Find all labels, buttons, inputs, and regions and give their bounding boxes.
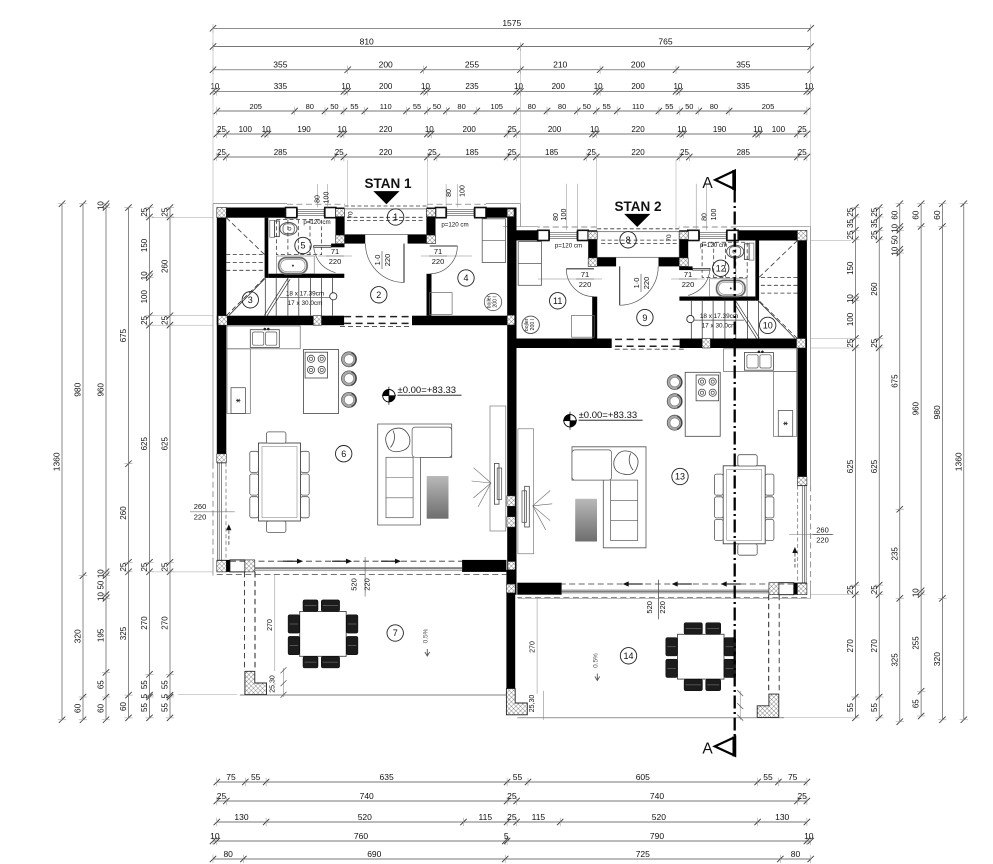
svg-text:270: 270 (161, 616, 170, 630)
svg-text:285: 285 (737, 148, 751, 157)
svg-text:1360: 1360 (52, 452, 62, 471)
svg-text:60: 60 (912, 210, 921, 219)
svg-text:270: 270 (140, 616, 149, 630)
svg-text:255: 255 (912, 636, 921, 650)
svg-text:335: 335 (274, 82, 288, 91)
svg-text:150: 150 (846, 261, 855, 275)
svg-text:105: 105 (490, 102, 503, 111)
svg-text:10: 10 (97, 569, 106, 578)
svg-text:5: 5 (161, 693, 170, 698)
svg-text:625: 625 (846, 459, 855, 473)
svg-text:60: 60 (97, 703, 106, 712)
svg-text:200: 200 (463, 125, 477, 134)
svg-text:A: A (702, 175, 713, 192)
svg-text:220: 220 (432, 257, 445, 266)
svg-text:25: 25 (161, 207, 170, 216)
svg-text:10: 10 (210, 82, 219, 91)
svg-text:100: 100 (772, 125, 786, 134)
svg-text:10: 10 (846, 294, 855, 303)
svg-text:1: 1 (393, 212, 398, 222)
svg-text:10: 10 (262, 125, 271, 134)
svg-text:10: 10 (421, 82, 430, 91)
svg-text:25,30: 25,30 (269, 675, 276, 693)
svg-text:0.5%: 0.5% (593, 653, 600, 668)
svg-text:200: 200 (379, 60, 393, 70)
svg-text:25,30: 25,30 (529, 695, 536, 713)
svg-text:980: 980 (73, 382, 83, 396)
svg-text:±0.00=+83.33: ±0.00=+83.33 (398, 385, 457, 396)
svg-text:220: 220 (194, 513, 207, 522)
svg-text:p=120 cm: p=120 cm (441, 222, 468, 229)
svg-text:115: 115 (532, 812, 546, 822)
svg-text:980: 980 (932, 405, 942, 419)
svg-text:235: 235 (890, 547, 899, 561)
svg-text:25: 25 (507, 791, 517, 801)
svg-text:80: 80 (710, 102, 718, 111)
svg-text:325: 325 (119, 626, 128, 640)
svg-text:35: 35 (870, 219, 879, 228)
svg-text:25: 25 (217, 148, 226, 157)
svg-text:70: 70 (666, 234, 673, 242)
svg-text:80: 80 (315, 195, 322, 203)
svg-text:210: 210 (553, 60, 567, 70)
svg-text:55: 55 (140, 680, 149, 689)
svg-text:100: 100 (239, 125, 253, 134)
svg-text:220: 220 (379, 148, 393, 157)
svg-text:25: 25 (161, 315, 170, 324)
svg-text:10: 10 (425, 125, 434, 134)
svg-text:520: 520 (652, 812, 666, 822)
svg-text:220: 220 (329, 257, 342, 266)
svg-text:80: 80 (558, 102, 566, 111)
svg-text:760: 760 (354, 831, 368, 841)
svg-text:18 x 17.39cm: 18 x 17.39cm (286, 290, 324, 297)
svg-text:260: 260 (119, 506, 128, 520)
svg-text:100: 100 (711, 209, 718, 221)
svg-text:255: 255 (465, 60, 479, 70)
svg-text:220: 220 (579, 280, 592, 289)
svg-text:325: 325 (890, 653, 899, 667)
svg-text:625: 625 (870, 459, 879, 473)
svg-text:25: 25 (680, 148, 689, 157)
svg-text:10: 10 (912, 588, 921, 597)
svg-text:50: 50 (97, 580, 106, 589)
svg-text:55: 55 (763, 772, 773, 782)
svg-text:25: 25 (798, 125, 807, 134)
svg-text:260: 260 (870, 282, 879, 296)
svg-text:10: 10 (338, 125, 347, 134)
svg-text:765: 765 (658, 36, 672, 46)
svg-text:80: 80 (306, 102, 314, 111)
svg-text:80: 80 (791, 849, 801, 859)
svg-text:55: 55 (140, 703, 149, 712)
svg-text:100: 100 (324, 192, 331, 204)
svg-text:50: 50 (890, 235, 899, 244)
svg-text:220: 220 (682, 280, 695, 289)
svg-text:4: 4 (463, 273, 468, 283)
svg-text:55: 55 (513, 772, 523, 782)
svg-text:110: 110 (380, 102, 392, 111)
svg-text:5: 5 (140, 693, 149, 698)
svg-text:80: 80 (528, 102, 536, 111)
svg-text:110: 110 (632, 102, 644, 111)
svg-text:60: 60 (932, 210, 942, 220)
svg-text:60: 60 (119, 702, 128, 711)
svg-text:10: 10 (590, 125, 599, 134)
svg-text:10: 10 (763, 321, 773, 331)
svg-text:25: 25 (846, 230, 855, 239)
svg-text:130: 130 (775, 812, 789, 822)
svg-text:320: 320 (73, 629, 83, 643)
svg-text:p=120 cm: p=120 cm (303, 219, 330, 226)
svg-text:50: 50 (433, 102, 441, 111)
svg-text:960: 960 (97, 382, 106, 396)
svg-text:71: 71 (434, 247, 442, 256)
svg-text:25: 25 (798, 148, 807, 157)
svg-text:270: 270 (529, 641, 536, 653)
svg-text:55: 55 (870, 703, 879, 712)
svg-text:285: 285 (274, 148, 288, 157)
svg-text:55: 55 (350, 102, 358, 111)
svg-text:200: 200 (552, 82, 566, 91)
svg-text:25: 25 (140, 562, 149, 571)
svg-text:55: 55 (251, 772, 261, 782)
svg-text:675: 675 (119, 328, 128, 342)
svg-text:±0.00=+83.33: ±0.00=+83.33 (579, 410, 638, 421)
svg-text:80: 80 (553, 213, 560, 221)
svg-text:1·0: 1·0 (632, 278, 641, 289)
svg-text:260: 260 (194, 502, 207, 511)
svg-text:80: 80 (457, 102, 465, 111)
svg-text:100: 100 (846, 312, 855, 326)
svg-text:220: 220 (363, 578, 372, 591)
svg-text:100: 100 (460, 185, 467, 197)
svg-text:25: 25 (161, 562, 170, 571)
svg-text:25: 25 (335, 148, 344, 157)
svg-text:810: 810 (360, 36, 374, 46)
svg-text:25: 25 (797, 791, 807, 801)
svg-text:10: 10 (890, 223, 899, 232)
svg-text:790: 790 (650, 831, 664, 841)
svg-text:520: 520 (645, 601, 654, 614)
svg-text:75: 75 (226, 772, 236, 782)
svg-text:35: 35 (846, 219, 855, 228)
svg-text:STAN 2: STAN 2 (614, 199, 661, 214)
svg-text:690: 690 (367, 849, 381, 859)
svg-text:150: 150 (140, 238, 149, 252)
svg-text:115: 115 (479, 812, 493, 822)
svg-text:0.5%: 0.5% (423, 628, 430, 643)
svg-text:205: 205 (249, 102, 262, 111)
svg-text:10: 10 (140, 271, 149, 280)
svg-text:50: 50 (685, 102, 693, 111)
svg-text:270: 270 (846, 639, 855, 653)
svg-text:2: 2 (376, 290, 381, 300)
svg-text:25: 25 (846, 585, 855, 594)
svg-text:10: 10 (97, 592, 106, 601)
svg-text:220: 220 (383, 254, 392, 267)
svg-text:220: 220 (379, 125, 393, 134)
svg-text:71: 71 (581, 270, 589, 279)
svg-text:STAN 1: STAN 1 (364, 176, 411, 191)
svg-text:355: 355 (273, 60, 287, 70)
svg-text:60: 60 (890, 210, 899, 219)
svg-text:9: 9 (642, 313, 647, 323)
svg-text:65: 65 (97, 680, 106, 689)
svg-text:10: 10 (677, 125, 686, 134)
svg-text:100: 100 (140, 289, 149, 303)
svg-text:260: 260 (816, 526, 829, 535)
svg-text:11: 11 (553, 296, 562, 306)
svg-text:25: 25 (870, 207, 879, 216)
svg-text:220: 220 (658, 601, 667, 614)
svg-text:25: 25 (428, 148, 437, 157)
svg-text:50: 50 (330, 102, 338, 111)
svg-text:200: 200 (379, 82, 393, 91)
svg-text:p=120 cm: p=120 cm (700, 242, 727, 249)
svg-text:5: 5 (504, 831, 509, 841)
svg-text:25: 25 (119, 562, 128, 571)
svg-text:335: 335 (737, 82, 751, 91)
svg-text:80: 80 (702, 213, 709, 221)
svg-text:71: 71 (331, 247, 339, 256)
svg-text:1575: 1575 (502, 18, 521, 28)
svg-text:25: 25 (140, 315, 149, 324)
svg-text:25: 25 (217, 125, 226, 134)
svg-text:520: 520 (358, 812, 372, 822)
svg-text:10: 10 (890, 246, 899, 255)
svg-text:270: 270 (267, 619, 274, 631)
svg-text:10: 10 (594, 82, 603, 91)
svg-text:1·0: 1·0 (373, 255, 382, 266)
svg-text:12: 12 (716, 264, 726, 274)
svg-text:10: 10 (804, 82, 813, 91)
svg-text:25: 25 (846, 338, 855, 347)
svg-text:65: 65 (912, 699, 921, 708)
svg-text:80: 80 (446, 189, 453, 197)
svg-text:270: 270 (870, 639, 879, 653)
svg-text:675: 675 (890, 374, 899, 388)
svg-text:71: 71 (684, 270, 692, 279)
svg-text:235: 235 (465, 82, 479, 91)
svg-text:200 l: 200 l (530, 319, 536, 330)
svg-text:355: 355 (736, 60, 750, 70)
svg-text:10: 10 (753, 125, 762, 134)
svg-text:70: 70 (348, 211, 355, 219)
svg-text:25: 25 (140, 207, 149, 216)
svg-text:100: 100 (561, 209, 568, 221)
svg-text:520: 520 (350, 578, 359, 591)
svg-text:55: 55 (413, 102, 421, 111)
svg-text:10: 10 (804, 831, 814, 841)
svg-text:190: 190 (713, 125, 727, 134)
svg-text:55: 55 (846, 703, 855, 712)
svg-text:55: 55 (161, 703, 170, 712)
svg-text:50: 50 (583, 102, 591, 111)
svg-text:6: 6 (341, 449, 346, 459)
svg-text:25: 25 (846, 207, 855, 216)
svg-text:1360: 1360 (953, 452, 963, 471)
svg-text:205: 205 (762, 102, 775, 111)
svg-text:185: 185 (465, 148, 479, 157)
svg-text:220: 220 (642, 277, 651, 290)
svg-text:25: 25 (507, 812, 517, 822)
svg-text:p=120 cm: p=120 cm (555, 243, 582, 250)
svg-text:25: 25 (507, 125, 516, 134)
svg-text:80: 80 (223, 849, 233, 859)
svg-text:25: 25 (870, 230, 879, 239)
svg-text:8: 8 (626, 235, 631, 245)
svg-text:75: 75 (788, 772, 798, 782)
svg-text:10: 10 (97, 201, 106, 210)
svg-text:10: 10 (210, 831, 220, 841)
svg-text:25: 25 (587, 148, 596, 157)
svg-text:25: 25 (870, 585, 879, 594)
svg-text:14: 14 (623, 651, 633, 661)
svg-text:635: 635 (380, 772, 394, 782)
svg-text:220: 220 (816, 536, 829, 545)
svg-text:55: 55 (603, 102, 611, 111)
svg-text:17 x 30.0cm: 17 x 30.0cm (702, 323, 737, 330)
svg-text:200: 200 (631, 60, 645, 70)
svg-text:60: 60 (73, 703, 83, 713)
svg-text:200 l: 200 l (493, 296, 499, 307)
svg-text:190: 190 (297, 125, 311, 134)
svg-text:10: 10 (514, 82, 523, 91)
svg-text:13: 13 (675, 472, 685, 482)
svg-text:740: 740 (650, 791, 664, 801)
svg-text:220: 220 (631, 148, 645, 157)
svg-text:625: 625 (140, 436, 149, 450)
svg-text:5: 5 (300, 241, 305, 251)
svg-text:195: 195 (97, 628, 106, 642)
svg-text:25: 25 (870, 338, 879, 347)
svg-text:605: 605 (636, 772, 650, 782)
svg-text:320: 320 (932, 652, 942, 666)
svg-text:625: 625 (161, 436, 170, 450)
svg-text:10: 10 (341, 82, 350, 91)
svg-text:10: 10 (673, 82, 682, 91)
svg-text:25: 25 (217, 791, 227, 801)
svg-text:55: 55 (665, 102, 673, 111)
svg-text:18 x 17.39cm: 18 x 17.39cm (700, 313, 738, 320)
svg-text:200: 200 (631, 82, 645, 91)
svg-text:130: 130 (234, 812, 248, 822)
svg-text:740: 740 (360, 791, 374, 801)
svg-text:725: 725 (636, 849, 650, 859)
svg-text:185: 185 (545, 148, 559, 157)
svg-text:25: 25 (507, 148, 516, 157)
svg-text:3: 3 (248, 295, 253, 305)
svg-text:960: 960 (912, 401, 921, 415)
svg-text:A: A (702, 741, 713, 758)
svg-text:260: 260 (161, 259, 170, 273)
svg-text:17 x 30.0cm: 17 x 30.0cm (288, 300, 323, 307)
svg-text:7: 7 (393, 628, 398, 638)
svg-text:220: 220 (631, 125, 645, 134)
svg-text:55: 55 (161, 680, 170, 689)
svg-text:200: 200 (548, 125, 562, 134)
